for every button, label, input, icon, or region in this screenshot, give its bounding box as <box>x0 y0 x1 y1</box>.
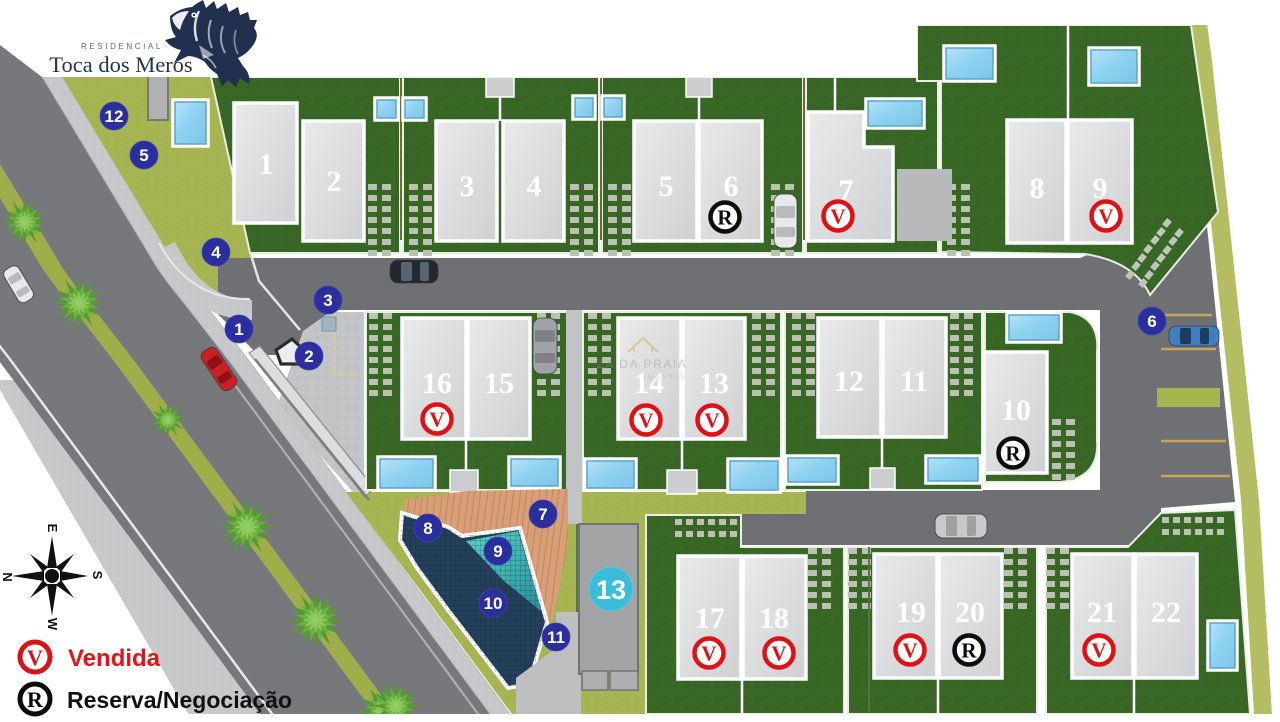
svg-text:13: 13 <box>596 575 626 605</box>
svg-text:R: R <box>27 687 44 712</box>
svg-text:Toca dos Meros: Toca dos Meros <box>49 52 192 77</box>
svg-text:8: 8 <box>423 519 432 538</box>
svg-text:E: E <box>45 524 60 533</box>
svg-text:21: 21 <box>1087 596 1117 629</box>
svg-text:V: V <box>771 642 786 666</box>
svg-text:8: 8 <box>1030 172 1045 205</box>
svg-text:1: 1 <box>259 148 274 181</box>
svg-text:5: 5 <box>139 146 148 165</box>
svg-text:2: 2 <box>304 347 313 366</box>
svg-text:10: 10 <box>484 594 503 613</box>
svg-text:20: 20 <box>955 596 985 629</box>
svg-text:2: 2 <box>327 165 342 198</box>
svg-text:17: 17 <box>695 602 725 635</box>
svg-text:S: S <box>90 571 105 580</box>
svg-text:V: V <box>638 409 653 433</box>
svg-text:V: V <box>1091 639 1106 663</box>
svg-text:R: R <box>961 639 977 663</box>
svg-text:3: 3 <box>323 291 332 310</box>
svg-text:11: 11 <box>900 365 928 398</box>
svg-text:Vendida: Vendida <box>68 645 161 672</box>
svg-text:W: W <box>45 618 60 631</box>
svg-text:12: 12 <box>105 107 124 126</box>
svg-text:4: 4 <box>211 243 221 262</box>
svg-text:13: 13 <box>699 367 729 400</box>
svg-text:IMÓVEIS: IMÓVEIS <box>643 372 686 381</box>
svg-text:V: V <box>1098 205 1113 229</box>
svg-text:14: 14 <box>634 367 664 400</box>
svg-text:RESIDENCIAL: RESIDENCIAL <box>81 42 163 51</box>
svg-text:V: V <box>704 409 719 433</box>
svg-text:6: 6 <box>724 170 739 203</box>
svg-text:16: 16 <box>422 367 452 400</box>
svg-text:V: V <box>701 642 716 666</box>
svg-text:3: 3 <box>460 170 475 203</box>
svg-text:R: R <box>1005 442 1021 466</box>
svg-text:N: N <box>0 572 15 581</box>
svg-text:10: 10 <box>1001 394 1031 427</box>
svg-text:5: 5 <box>659 170 674 203</box>
svg-text:12: 12 <box>834 365 864 398</box>
svg-text:7: 7 <box>538 505 547 524</box>
svg-text:V: V <box>429 408 444 432</box>
svg-text:1: 1 <box>234 320 243 339</box>
svg-text:V: V <box>902 639 917 663</box>
svg-text:19: 19 <box>896 596 926 629</box>
svg-text:15: 15 <box>484 367 514 400</box>
svg-text:9: 9 <box>493 542 502 561</box>
svg-text:18: 18 <box>759 602 789 635</box>
svg-text:R: R <box>717 206 733 230</box>
svg-text:V: V <box>27 645 43 670</box>
svg-text:ZA DA PRAIA: ZA DA PRAIA <box>597 357 688 371</box>
svg-text:22: 22 <box>1151 596 1181 629</box>
svg-text:4: 4 <box>527 170 542 203</box>
svg-text:Reserva/Negociação: Reserva/Negociação <box>67 687 292 713</box>
svg-text:11: 11 <box>547 628 565 647</box>
svg-text:V: V <box>830 205 845 229</box>
svg-text:6: 6 <box>1147 312 1156 331</box>
